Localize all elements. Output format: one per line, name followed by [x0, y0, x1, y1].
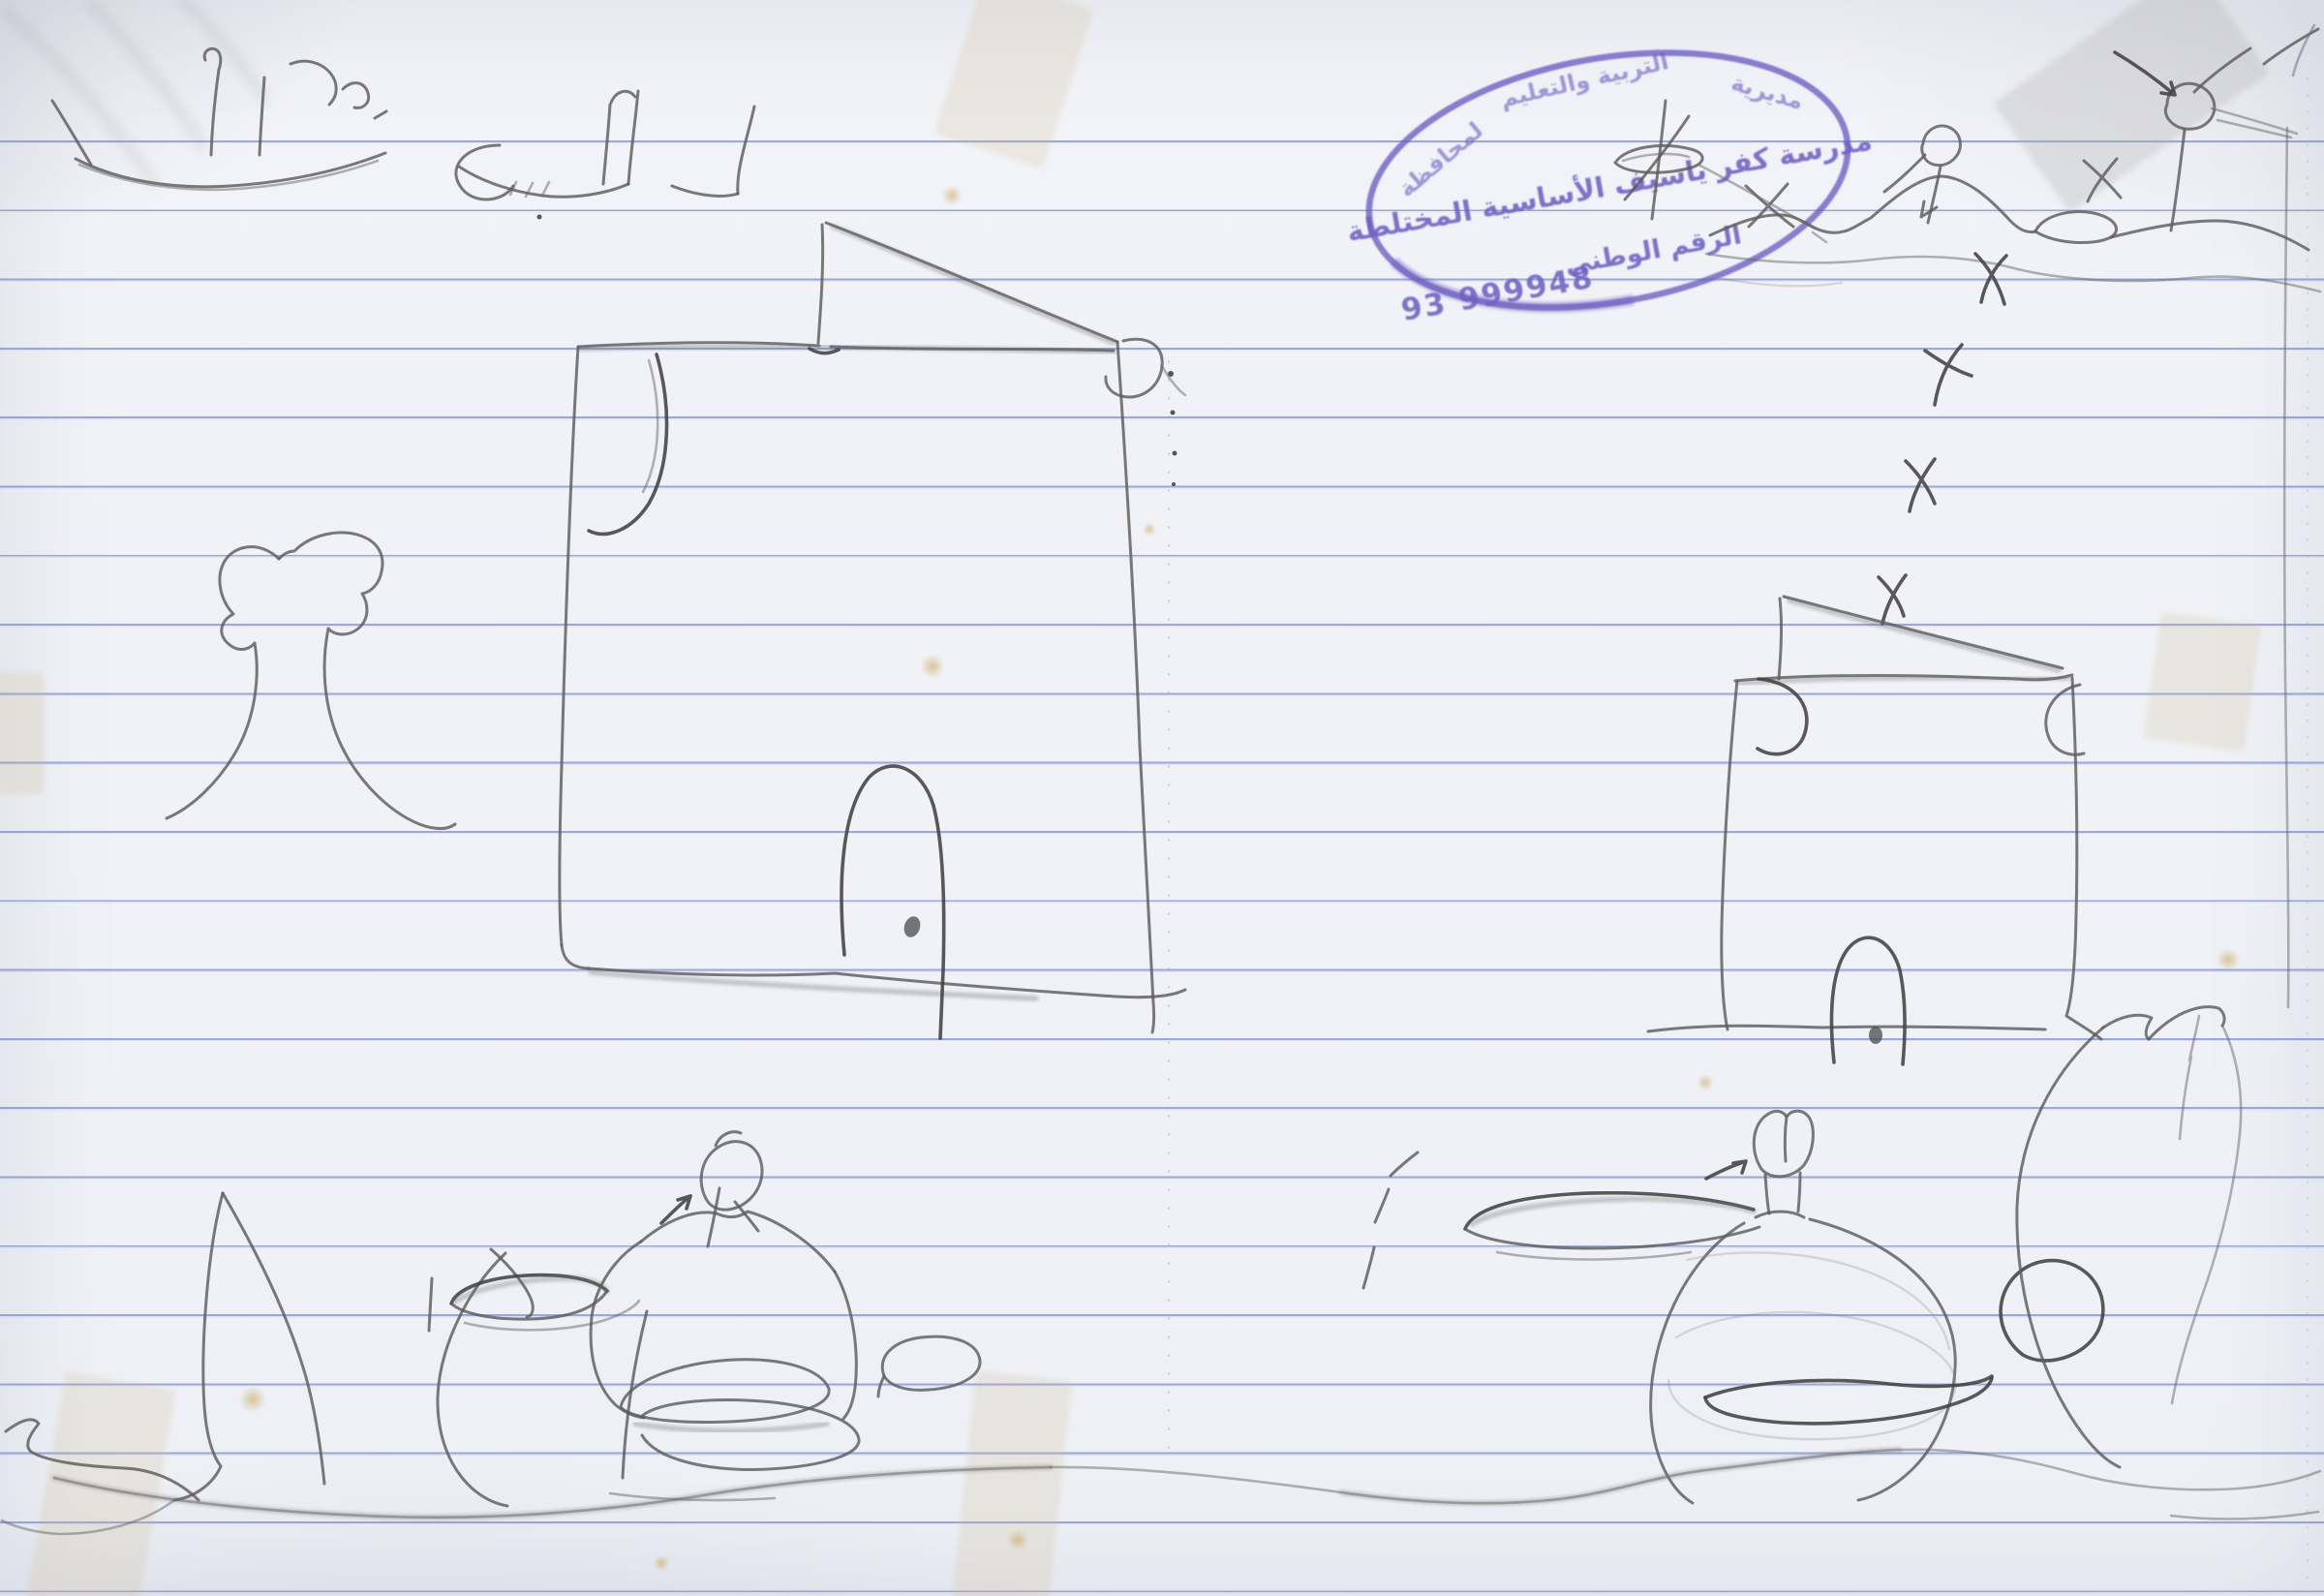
stick-figure [1884, 126, 1960, 223]
cross-marks-column [1879, 254, 2006, 624]
bush-sketch [2017, 1007, 2241, 1467]
small-house-sketch [1648, 597, 2101, 1064]
doorknob [1869, 1027, 1882, 1044]
school-stamp: مديرية التربية والتعليم لمحافظة مدرسة كف… [1325, 14, 1891, 347]
doorknob [902, 914, 923, 939]
stamp-national-number: 93 999948 [1398, 260, 1597, 327]
cloud-tree-sketch [167, 533, 455, 829]
sketch-and-stamp-layer: مديرية التربية والتعليم لمحافظة مدرسة كف… [0, 0, 2324, 1596]
teapot-right-sketch [1363, 1111, 2103, 1503]
wing-fin-sketch [2, 1193, 647, 1534]
large-house-sketch [560, 223, 1185, 1038]
corner-smudge [8, 2, 263, 182]
stamp-arc-text-left: لمحافظة [1392, 116, 1487, 202]
teapot-handle [2001, 1261, 2103, 1361]
fold-crease [1168, 77, 2308, 1588]
page-edge-line [2284, 128, 2288, 1007]
pinwheel [2115, 48, 2297, 230]
large-house-door [841, 766, 944, 1038]
small-house-door [1831, 937, 1904, 1064]
ground-line-sketch [54, 1450, 2320, 1519]
scanned-notebook-page: مديرية التربية والتعليم لمحافظة مدرسة كف… [0, 0, 2324, 1596]
x-mark [2084, 159, 2121, 201]
